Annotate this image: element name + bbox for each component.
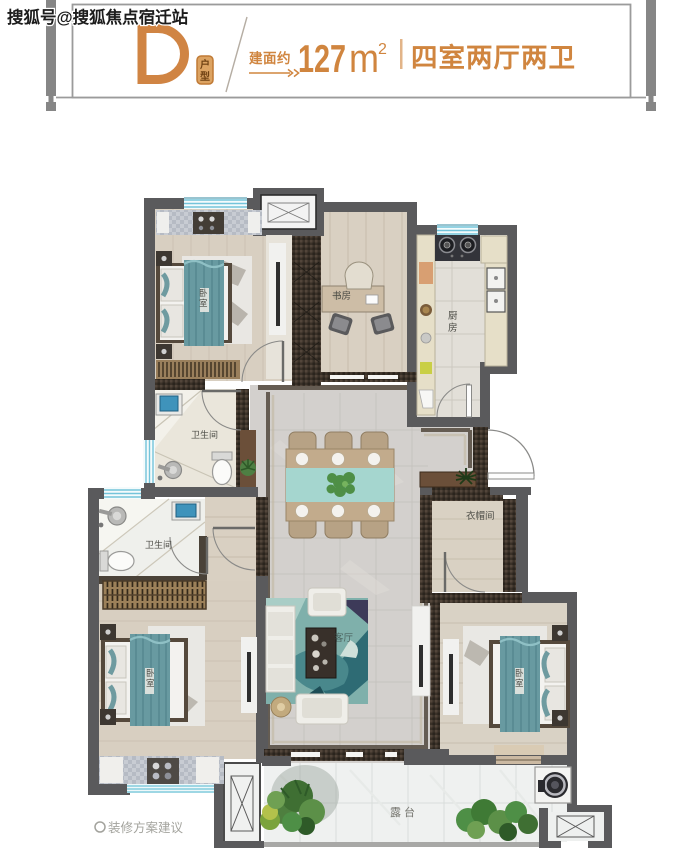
svg-text:建面约: 建面约 [248, 50, 291, 66]
svg-text:室: 室 [515, 678, 524, 688]
svg-text:户: 户 [199, 58, 210, 71]
svg-text:卫生间: 卫生间 [145, 539, 172, 550]
svg-text:客厅: 客厅 [334, 632, 354, 644]
svg-text:型: 型 [200, 70, 210, 83]
svg-text:露台: 露台 [390, 805, 418, 819]
svg-text:房: 房 [448, 322, 458, 334]
svg-text:装修方案建议: 装修方案建议 [108, 820, 184, 835]
svg-text:搜狐号@搜狐焦点宿迁站: 搜狐号@搜狐焦点宿迁站 [7, 7, 189, 27]
svg-text:室: 室 [199, 298, 208, 308]
svg-text:厨: 厨 [448, 311, 458, 322]
svg-text:衣帽间: 衣帽间 [466, 510, 495, 522]
svg-text:卫生间: 卫生间 [191, 429, 218, 440]
svg-text:室: 室 [146, 678, 155, 688]
svg-text:2: 2 [378, 41, 387, 58]
svg-text:四室两厅两卫: 四室两厅两卫 [411, 43, 576, 73]
svg-text:卧: 卧 [199, 288, 208, 298]
svg-text:卧: 卧 [146, 668, 155, 678]
svg-text:卧: 卧 [515, 668, 524, 678]
svg-text:m: m [349, 37, 379, 81]
svg-text:书房: 书房 [332, 290, 351, 302]
svg-text:127: 127 [298, 38, 346, 81]
